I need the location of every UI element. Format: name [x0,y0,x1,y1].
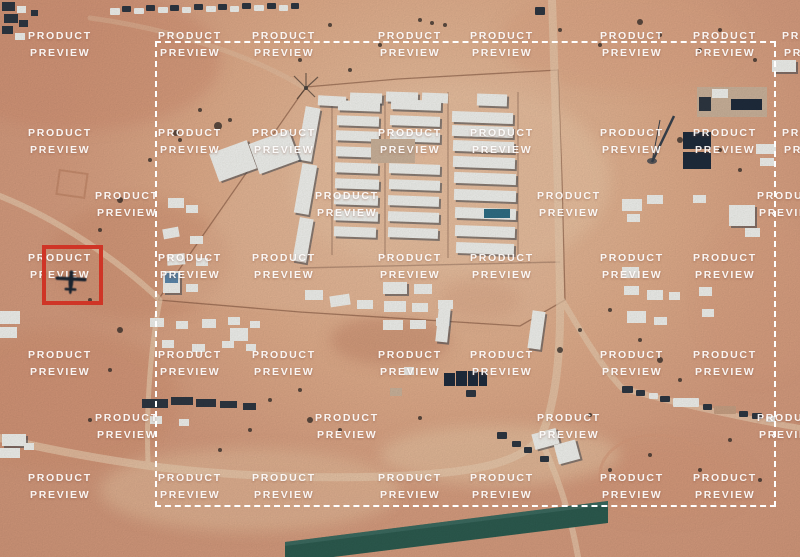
selection-region-dashed-box [155,41,776,507]
aircraft-silhouette-icon [51,260,91,300]
satellite-image: PRODUCTPREVIEWPRODUCTPREVIEWPRODUCTPREVI… [0,0,800,557]
